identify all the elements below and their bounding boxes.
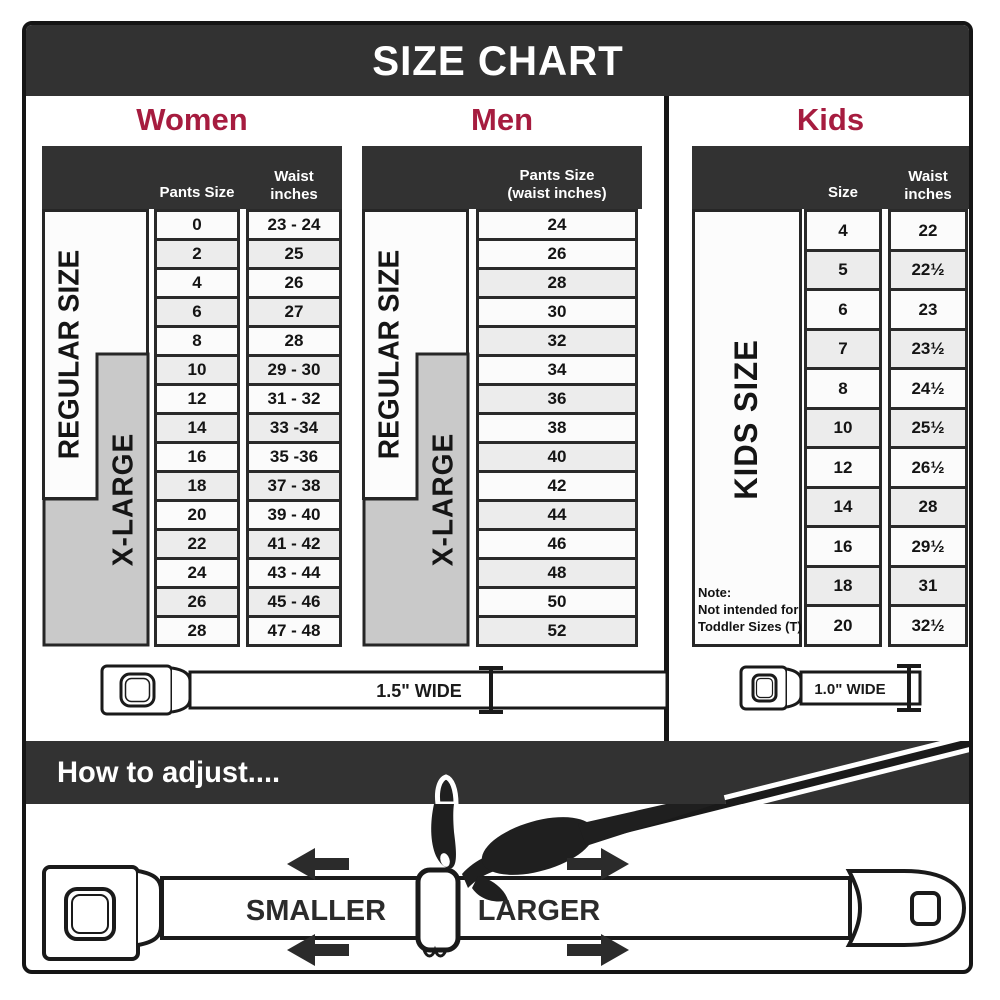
size-table-cell: 4	[804, 209, 882, 252]
size-table-cell: 12	[804, 446, 882, 489]
size-table-cell: 26	[154, 586, 240, 618]
size-table-cell: 12	[154, 383, 240, 415]
size-table-cell: 0	[154, 209, 240, 241]
size-table-cell: 28	[246, 325, 342, 357]
women-size-range-boxes	[42, 209, 150, 647]
size-table-cell: 7	[804, 328, 882, 371]
size-table-cell: 6	[804, 288, 882, 331]
kids-size-box	[692, 209, 802, 647]
women-heading: Women	[42, 101, 342, 139]
size-table-cell: 26½	[888, 446, 968, 489]
men-col-pants-header: Pants Size (waist inches)	[476, 167, 638, 205]
size-table-cell: 23	[888, 288, 968, 331]
kids-belt-width-label: 1.0" WIDE	[814, 681, 885, 698]
women-waist-column: 23 - 242526272829 - 3031 - 3233 -3435 -3…	[246, 209, 342, 647]
size-table-cell: 34	[476, 354, 638, 386]
size-table-cell: 38	[476, 412, 638, 444]
size-table-cell: 47 - 48	[246, 615, 342, 647]
men-table-header: Pants Size (waist inches)	[362, 146, 642, 209]
size-table-cell: 29 - 30	[246, 354, 342, 386]
size-table-cell: 42	[476, 470, 638, 502]
size-table-cell: 39 - 40	[246, 499, 342, 531]
women-table-header: Pants Size Waist inches	[42, 146, 342, 209]
size-table-cell: 25½	[888, 407, 968, 450]
size-table-cell: 22½	[888, 249, 968, 292]
smaller-label: SMALLER	[246, 895, 386, 927]
size-table-cell: 29½	[888, 525, 968, 568]
size-table-cell: 10	[804, 407, 882, 450]
size-table-cell: 22	[154, 528, 240, 560]
size-table-cell: 22	[888, 209, 968, 252]
size-table-cell: 31	[888, 565, 968, 608]
size-table-cell: 23 - 24	[246, 209, 342, 241]
size-table-cell: 50	[476, 586, 638, 618]
men-heading: Men	[362, 101, 642, 139]
size-table-cell: 28	[888, 486, 968, 529]
size-table-cell: 8	[804, 367, 882, 410]
size-table-cell: 24½	[888, 367, 968, 410]
size-chart-infographic: SIZE CHART Women Men Kids Pants Size Wai…	[0, 0, 1000, 1000]
size-table-cell: 28	[476, 267, 638, 299]
kids-note: Note: Not intended for Toddler Sizes (T)	[698, 585, 802, 636]
size-table-cell: 33 -34	[246, 412, 342, 444]
men-size-range-boxes	[362, 209, 470, 647]
size-table-cell: 37 - 38	[246, 470, 342, 502]
size-table-cell: 44	[476, 499, 638, 531]
page-title: SIZE CHART	[372, 37, 624, 85]
adult-belt-illustration: 1.5" WIDE	[99, 659, 669, 721]
women-col-pants-header: Pants Size	[154, 184, 240, 203]
size-table-cell: 20	[804, 604, 882, 647]
kids-waist-column: 2222½2323½24½25½26½2829½3132½	[888, 209, 968, 647]
kids-col-waist-header: Waist inches	[888, 168, 968, 206]
slider-icon	[418, 870, 458, 956]
kids-heading: Kids	[692, 101, 969, 139]
size-table-cell: 14	[154, 412, 240, 444]
size-table-cell: 18	[154, 470, 240, 502]
size-table-cell: 27	[246, 296, 342, 328]
size-table-cell: 2	[154, 238, 240, 270]
women-size-column: 0246810121416182022242628	[154, 209, 240, 647]
panel-divider	[664, 96, 669, 741]
adjust-bar: How to adjust....	[26, 741, 969, 804]
size-table-cell: 40	[476, 441, 638, 473]
size-table-cell: 43 - 44	[246, 557, 342, 589]
size-table-cell: 5	[804, 249, 882, 292]
title-bar: SIZE CHART	[26, 25, 969, 96]
size-table-cell: 10	[154, 354, 240, 386]
size-table-cell: 18	[804, 565, 882, 608]
size-table-cell: 26	[246, 267, 342, 299]
size-table-cell: 52	[476, 615, 638, 647]
size-table-cell: 45 - 46	[246, 586, 342, 618]
size-table-cell: 32½	[888, 604, 968, 647]
adult-belt-width-label: 1.5" WIDE	[376, 681, 462, 701]
size-table-cell: 48	[476, 557, 638, 589]
size-table-cell: 23½	[888, 328, 968, 371]
size-table-cell: 36	[476, 383, 638, 415]
adjust-heading: How to adjust....	[26, 756, 280, 790]
outer-frame: SIZE CHART Women Men Kids Pants Size Wai…	[22, 21, 973, 974]
size-table-cell: 30	[476, 296, 638, 328]
size-table-cell: 20	[154, 499, 240, 531]
kids-belt-illustration: 1.0" WIDE	[738, 662, 934, 714]
size-table-cell: 8	[154, 325, 240, 357]
size-table-cell: 41 - 42	[246, 528, 342, 560]
size-table-cell: 16	[804, 525, 882, 568]
women-col-waist-header: Waist inches	[246, 168, 342, 206]
kids-size-column: 45678101214161820	[804, 209, 882, 647]
adjust-illustration: SMALLER LARGER	[26, 804, 973, 974]
kids-col-size-header: Size	[804, 184, 882, 203]
size-table-cell: 32	[476, 325, 638, 357]
size-table-cell: 14	[804, 486, 882, 529]
buckle-icon	[44, 867, 161, 959]
size-table-cell: 35 -36	[246, 441, 342, 473]
size-table-cell: 6	[154, 296, 240, 328]
belt-tip-icon	[849, 871, 964, 945]
size-table-cell: 4	[154, 267, 240, 299]
men-size-column: 242628303234363840424446485052	[476, 209, 638, 647]
size-table-cell: 16	[154, 441, 240, 473]
size-table-cell: 24	[476, 209, 638, 241]
size-table-cell: 26	[476, 238, 638, 270]
size-table-cell: 24	[154, 557, 240, 589]
kids-table-header: Size Waist inches	[692, 146, 969, 209]
size-table-cell: 46	[476, 528, 638, 560]
size-table-cell: 25	[246, 238, 342, 270]
larger-label: LARGER	[478, 895, 601, 927]
size-table-cell: 28	[154, 615, 240, 647]
size-table-cell: 31 - 32	[246, 383, 342, 415]
